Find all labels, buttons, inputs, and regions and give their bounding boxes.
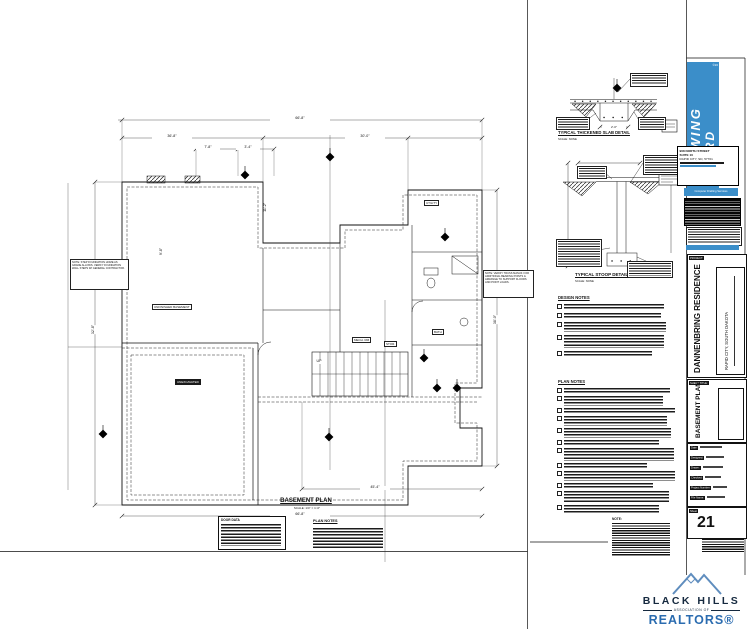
field-label-drawn: Drawn:	[690, 466, 701, 470]
field-value-file-name	[707, 496, 725, 498]
project-location-box: RAPID CITY, SOUTH DAKOTA	[716, 267, 745, 375]
slab-detail-title: TYPICAL THICKENED SLAB DETAIL	[558, 131, 630, 135]
plan-note-num	[557, 463, 562, 468]
copyright-block	[684, 198, 741, 226]
stoop-note-box	[556, 239, 602, 267]
room-label-stor: STOR.	[384, 341, 397, 347]
dim-right: 38'-0"	[494, 315, 498, 324]
plan-note-line	[564, 408, 675, 414]
field-value-drawn	[703, 466, 723, 468]
plan-note-line	[564, 491, 669, 502]
stoop-detail-title: TYPICAL STOOP DETAIL	[575, 273, 628, 278]
realtor-line1: BLACK HILLS	[635, 595, 748, 607]
project-label: PROJECT:	[689, 256, 704, 260]
room-label-mech: MECH. RM	[352, 337, 371, 343]
plan-notes-bottom-title: PLAN NOTES	[313, 520, 337, 524]
design-notes-title: DESIGN NOTES	[558, 296, 590, 300]
design-note-num	[557, 313, 562, 318]
stoop-detail-scale: SCALE: NONE	[575, 280, 594, 283]
fields-box: Date: Designed: Drawn: Checked: Project …	[687, 443, 747, 507]
design-note-line	[564, 335, 664, 348]
plan-note-num	[557, 428, 562, 433]
field-label-file-name: File Name:	[690, 496, 705, 500]
plan-note-num	[557, 408, 562, 413]
door-data-box: DOOR DATA	[218, 516, 286, 550]
room-label-main: UNFINISHED BASEMENT	[152, 304, 192, 310]
sheet-number: 21	[697, 514, 715, 532]
plan-note-line	[564, 463, 647, 469]
note-truss-bearing: NOTE: VERIFY TRUSS MANUF. FOR ADDITIONAL…	[483, 270, 534, 298]
dim-interior-h: 9'-8"	[160, 248, 164, 255]
design-note-line	[564, 313, 661, 319]
drawing-sheet: 66'-8" 36'-8" 30'-0" 7'-8" 3'-4" 32'-8" …	[0, 0, 750, 629]
sheet-title-box: SHEET TITLE: BASEMENT PLAN	[687, 379, 747, 443]
field-value-designed	[706, 456, 724, 458]
plan-note-num	[557, 483, 562, 488]
project-name: DANNENBRING RESIDENCE	[693, 265, 702, 373]
field-label-date: Date:	[690, 446, 698, 450]
design-note-line	[564, 322, 666, 332]
dim-bottom: 45'-4"	[360, 486, 390, 490]
plan-note-line	[564, 416, 667, 426]
project-location: RAPID CITY, SOUTH DAKOTA	[724, 272, 729, 370]
plan-note-num	[557, 440, 562, 445]
address-phone-line	[680, 162, 724, 164]
dim-sub-a: 7'-8"	[196, 146, 220, 150]
sheet-label: Sheet	[689, 509, 698, 513]
slab-dim: 2'-0"	[602, 126, 626, 129]
design-note-line	[564, 304, 664, 310]
blue-strip	[686, 245, 739, 250]
dim-interior-v: 11'-2"	[264, 203, 268, 212]
sheet-title: BASEMENT PLAN	[695, 386, 702, 438]
design-note-line	[564, 351, 652, 357]
design-note-num	[557, 351, 562, 356]
field-label-designed: Designed:	[690, 456, 704, 460]
plan-note-line	[564, 396, 663, 406]
field-value-project-number	[713, 486, 727, 488]
door-data-title: DOOR DATA	[221, 519, 240, 522]
dim-top-right: 30'-0"	[345, 135, 385, 139]
slab-callout-right	[638, 117, 666, 130]
design-note-num	[557, 335, 562, 340]
room-label-unexcavated: UNEXCAVATED	[175, 379, 201, 385]
note-step-foundation: NOTE: STEP FOUNDATION HOME AS GRADE ALLO…	[70, 259, 129, 290]
plan-note-num	[557, 396, 562, 401]
plan-note-line	[564, 428, 671, 438]
plan-note-num	[557, 505, 562, 510]
slab-callout-top	[630, 73, 668, 87]
stairs	[312, 352, 408, 396]
plan-note-num	[557, 388, 562, 393]
plan-note-num	[557, 416, 562, 421]
project-sub-line	[734, 276, 735, 366]
stoop-callout-b	[643, 155, 681, 175]
plan-note-line	[564, 388, 670, 394]
plan-note-line	[564, 471, 675, 481]
door-data-lines	[221, 524, 281, 546]
note-paragraph-lines	[612, 523, 670, 556]
realtor-line3: REALTORS®	[635, 613, 748, 627]
field-value-checked	[705, 476, 721, 478]
sheet-number-box: Sheet 21	[687, 507, 747, 539]
sheet-title-sub-box	[718, 388, 744, 440]
plan-note-line	[564, 505, 659, 513]
plan-scale: SCALE: 1/4" = 1'-0"	[272, 507, 342, 510]
realtor-line2: ASSOCIATION OF	[643, 608, 740, 612]
dim-sub-b: 3'-4"	[236, 146, 260, 150]
realtor-logo: BLACK HILLS ASSOCIATION OF REALTORS®	[635, 570, 748, 628]
plan-note-num	[557, 491, 562, 496]
plan-title: BASEMENT PLAN	[250, 498, 362, 504]
slab-callout-left	[556, 117, 590, 130]
field-value-date	[700, 446, 722, 448]
address-web-line	[680, 165, 716, 167]
plan-note-line	[564, 440, 659, 446]
slab-detail-scale: SCALE: NONE	[558, 138, 577, 141]
stair-up-label: UP	[314, 360, 324, 364]
plan-note-line	[564, 448, 674, 461]
note-paragraph-label: NOTE:	[612, 518, 622, 521]
design-note-num	[557, 322, 562, 327]
stoop-callout-a	[577, 166, 607, 179]
dim-top-overall: 66'-8"	[270, 117, 330, 121]
project-box: PROJECT: DANNENBRING RESIDENCE RAPID CIT…	[687, 254, 747, 378]
plan-note-num	[557, 471, 562, 476]
field-label-checked: Checked:	[690, 476, 703, 480]
certification-box	[686, 227, 742, 246]
plan-note-line	[564, 483, 653, 489]
design-note-num	[557, 304, 562, 309]
field-label-project-number: Project Number:	[690, 486, 711, 490]
sheet-fine-print	[702, 539, 744, 553]
address-box: 908 NORTH STREET SUITE 10 RAPID CITY, SD…	[677, 146, 739, 186]
dim-top-left: 36'-8"	[152, 135, 192, 139]
room-label-utility: UTILITY	[424, 200, 439, 206]
stoop-callout-c	[627, 261, 673, 278]
dim-left: 32'-8"	[92, 325, 96, 334]
logo-mark: ©20	[712, 63, 718, 67]
mountain-icon	[635, 570, 748, 596]
plan-notes-col-title: PLAN NOTES	[558, 380, 585, 384]
tagline-bar: Computer Drafting Services	[684, 188, 738, 196]
plan-note-num	[557, 448, 562, 453]
plan-notes-bottom-lines	[313, 528, 383, 548]
address-line-3: RAPID CITY, SD, 57701	[680, 157, 737, 161]
room-label-bath: BATH	[432, 329, 444, 335]
